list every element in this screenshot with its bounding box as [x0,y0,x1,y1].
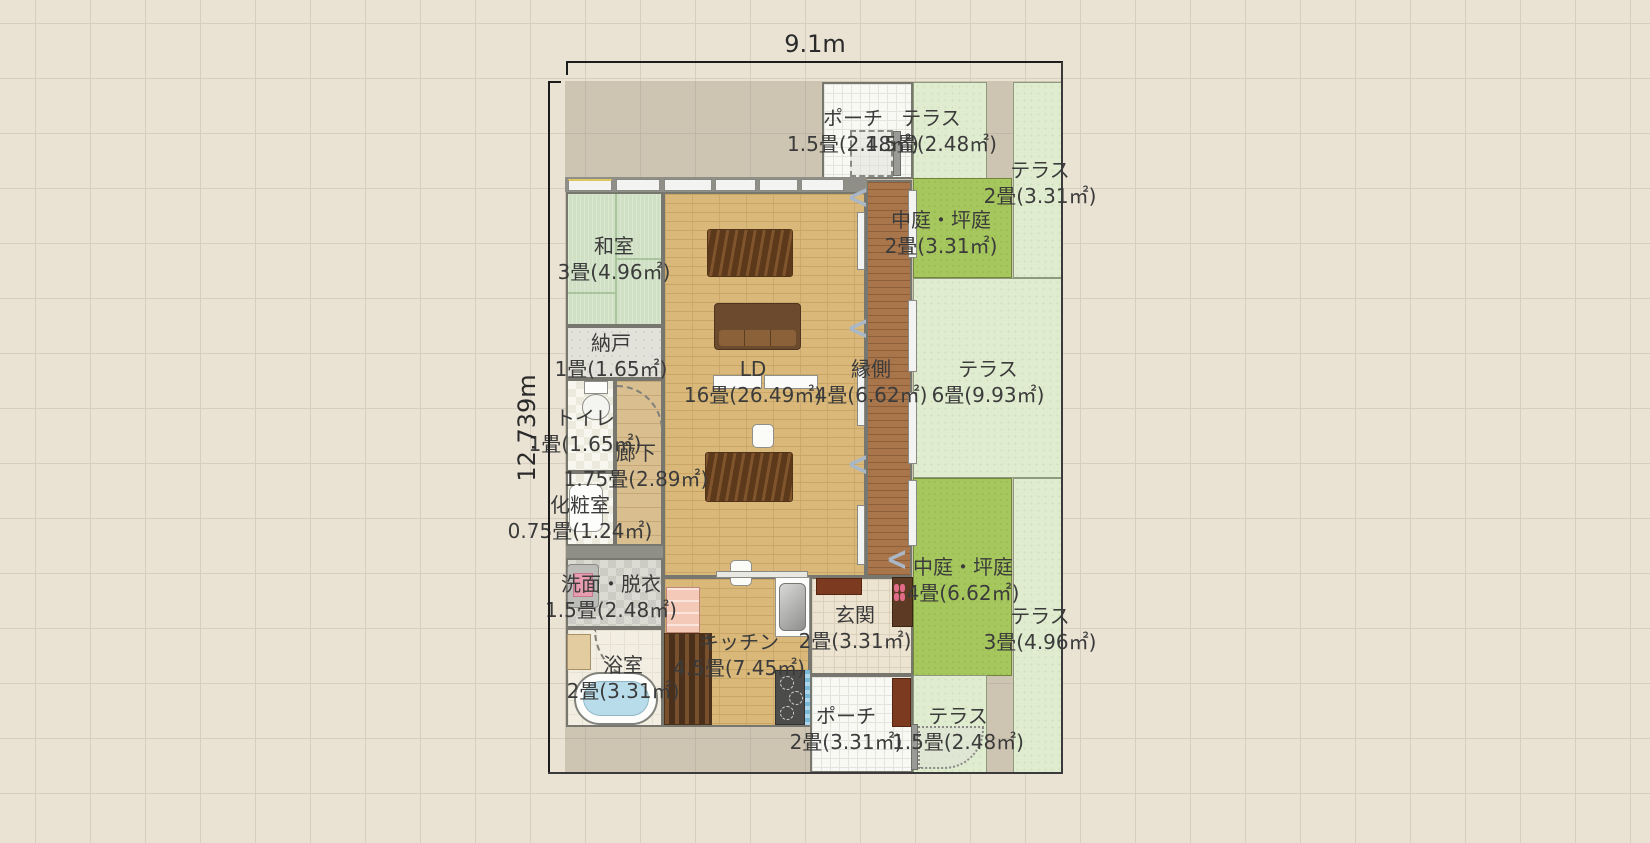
slide-arrow-icon: < [847,310,869,348]
room-label-porch-bottom: ポーチ2畳(3.31㎡) [790,703,903,755]
room-label-rouka: 廊下1.75畳(2.89㎡) [564,440,709,492]
window[interactable] [908,480,917,546]
room-label-terrace3: テラス3畳(4.96㎡) [984,603,1097,655]
plan-right-border [1061,62,1063,774]
window[interactable] [801,179,844,191]
dimension-tick [566,61,568,75]
window[interactable] [664,179,712,191]
room-label-yokushitsu: 浴室2畳(3.31㎡) [567,652,680,704]
sofa-seat [719,330,796,346]
room-label-kitchen: キッチン4.5畳(7.45㎡) [673,629,805,681]
slipper-icon [894,593,899,601]
room-label-ld: LD16畳(26.49㎡) [684,356,822,408]
width-dimension-label: 9.1m [784,30,846,58]
room-label-keshoushitsu: 化粧室0.75畳(1.24㎡) [508,492,653,544]
room-label-courtyard4: 中庭・坪庭4畳(6.62㎡) [907,554,1020,606]
window[interactable] [616,179,660,191]
slide-arrow-icon: < [886,541,908,579]
window[interactable] [715,179,756,191]
work-table[interactable] [705,452,793,502]
room-label-terrace-top: テラス1.5畳(2.48㎡) [865,105,997,157]
window[interactable] [759,179,798,191]
slipper-icon [894,584,899,592]
room-label-terrace6: テラス6畳(9.93㎡) [932,356,1045,408]
tatami-seam [568,292,615,294]
room-label-genkan: 玄関2畳(3.31㎡) [799,602,912,654]
toilet-icon[interactable] [584,381,608,394]
dimension-tick [548,81,561,83]
room-label-engawa: 縁側4畳(6.62㎡) [815,356,928,408]
room-label-nando: 納戸1畳(1.65㎡) [555,330,668,382]
window[interactable] [857,212,865,270]
plan-bottom-border [548,772,1063,774]
height-dimension-label: 12.739m [513,374,541,481]
slide-arrow-icon: < [847,446,869,484]
slipper-icon [900,593,905,601]
slipper-icon [900,584,905,592]
wall-band [566,546,663,558]
chair[interactable] [752,424,774,448]
dining-table[interactable] [707,229,793,277]
room-label-terrace-bottom: テラス1.5畳(2.48㎡) [892,703,1024,755]
room-label-terrace2: テラス2畳(3.31㎡) [984,157,1097,209]
floor-plan-canvas: < < < < 和室3畳(4.96㎡) 納戸1畳(1.65㎡) トイレ1畳(1.… [0,0,1650,843]
slide-arrow-icon: < [847,179,869,217]
shoe-cabinet[interactable] [816,578,862,595]
sofa[interactable] [714,303,801,350]
room-label-senmen: 洗面・脱衣1.5畳(2.48㎡) [545,571,677,623]
window[interactable] [857,505,865,565]
room-label-courtyard2: 中庭・坪庭2畳(3.31㎡) [885,207,998,259]
width-dimension-line [566,61,1063,63]
room-label-washitsu: 和室3畳(4.96㎡) [558,233,671,285]
height-dimension-line [548,81,550,774]
window[interactable] [568,179,612,191]
